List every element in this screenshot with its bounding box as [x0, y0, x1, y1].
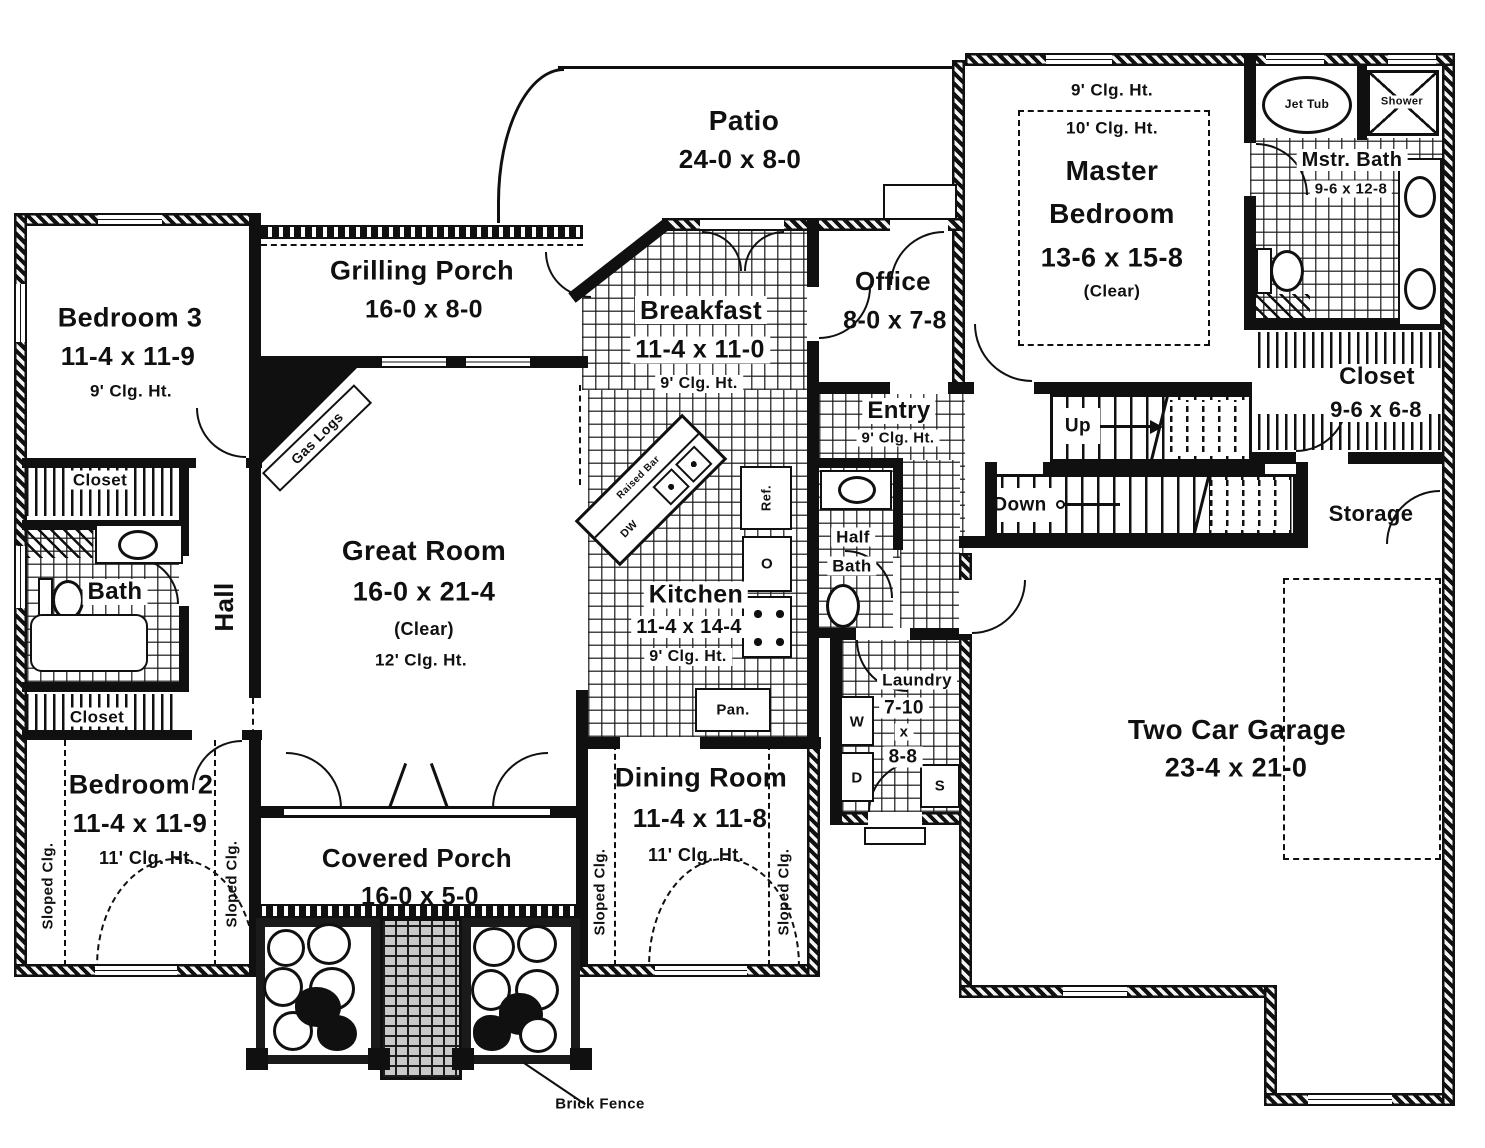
- door-leaf: [430, 763, 449, 809]
- up-arrow-line: [1100, 425, 1152, 428]
- fence-post: [368, 1048, 390, 1070]
- clg-label-master-inner: 10' Clg. Ht.: [1066, 120, 1158, 137]
- window: [1046, 53, 1112, 66]
- door-gap: [196, 458, 246, 468]
- dim-label-office: 8-0 x 7-8: [843, 309, 947, 334]
- bush: [517, 925, 557, 963]
- stairs-up-dashed: [1170, 400, 1246, 456]
- door-leaf: [388, 763, 407, 809]
- dim-label-breakfast: 11-4 x 11-0: [630, 337, 770, 364]
- porch-rail: [261, 225, 583, 239]
- window: [14, 546, 27, 608]
- laundry-step: [864, 827, 926, 845]
- stairs-up-label: Up: [1065, 417, 1091, 436]
- clg-label-bedroom2: 11' Clg. Ht.: [99, 849, 195, 867]
- room-label-bedroom3: Bedroom 3: [58, 305, 203, 332]
- room-label-laundry: Laundry: [877, 671, 957, 690]
- window: [14, 284, 27, 342]
- room-label-master-2: Bedroom: [1049, 200, 1175, 228]
- garden-bed: [256, 918, 380, 1064]
- bush: [267, 929, 305, 967]
- door-arc: [545, 252, 591, 298]
- hatch-area: [27, 524, 93, 558]
- dim-label-laundry-1: 7-10: [879, 698, 929, 719]
- dw-label: DW: [619, 519, 640, 540]
- clg-label-entry: 9' Clg. Ht.: [857, 430, 940, 447]
- door-gap: [700, 218, 784, 231]
- ref-label: Ref.: [760, 485, 773, 511]
- room-label-great-room: Great Room: [342, 537, 506, 565]
- ceiling-break-line: [252, 698, 254, 808]
- room-label-garage: Two Car Garage: [1128, 716, 1346, 744]
- corridor-tile-floor: [900, 460, 960, 632]
- shower-label: Shower: [1376, 96, 1428, 109]
- fence-post: [570, 1048, 592, 1070]
- exterior-wall: [807, 737, 820, 977]
- room-label-entry: Entry: [862, 398, 935, 424]
- note-label-master: (Clear): [1084, 283, 1141, 300]
- room-label-storage: Storage: [1329, 503, 1414, 525]
- bush-filled: [473, 1015, 511, 1051]
- dim-label-laundry-2: 8-8: [884, 747, 923, 768]
- door-arc: [286, 752, 342, 808]
- dim-label-grilling-porch: 16-0 x 8-0: [365, 298, 483, 323]
- interior-wall: [959, 536, 1308, 548]
- fence-post: [246, 1048, 268, 1070]
- patio-step: [883, 184, 957, 220]
- room-label-half-bath-2: Bath: [827, 557, 876, 576]
- stairs-down-dashed: [1210, 480, 1290, 530]
- dryer-label: D: [851, 771, 862, 786]
- interior-wall: [1296, 462, 1308, 536]
- sloped-clg-label: Sloped Clg.: [41, 843, 56, 930]
- room-label-bedroom2: Bedroom 2: [69, 772, 214, 799]
- pantry-label: Pan.: [716, 703, 749, 718]
- dim-label-master-closet: 9-6 x 6-8: [1325, 398, 1427, 422]
- room-label-master-closet: Closet: [1334, 364, 1420, 390]
- sloped-clg-label: Sloped Clg.: [225, 841, 240, 928]
- bath-sink: [118, 530, 158, 560]
- clg-label-breakfast: 9' Clg. Ht.: [655, 375, 743, 393]
- garden-bed: [462, 918, 580, 1064]
- door-gap: [856, 628, 910, 640]
- interior-wall: [249, 213, 261, 368]
- dim-label-great-room: 16-0 x 21-4: [353, 579, 496, 606]
- exterior-wall: [965, 53, 1455, 66]
- down-arrow-line: [1064, 503, 1120, 506]
- master-bath-sink: [1404, 268, 1436, 310]
- clg-label-great-room: 12' Clg. Ht.: [375, 652, 467, 669]
- dim-label-bedroom3: 11-4 x 11-9: [61, 343, 196, 369]
- brick-fence-label: Brick Fence: [555, 1097, 644, 1112]
- room-label-grilling-porch: Grilling Porch: [330, 258, 514, 285]
- room-label-closet2: Closet: [65, 708, 129, 727]
- dim-label-covered-porch: 16-0 x 5-0: [361, 885, 479, 910]
- window: [466, 356, 530, 368]
- half-bath-toilet: [826, 584, 860, 628]
- room-label-kitchen: Kitchen: [644, 582, 748, 609]
- sloped-ceiling-line: [64, 740, 66, 966]
- door-arc: [196, 408, 246, 458]
- room-label-closet3: Closet: [68, 471, 132, 490]
- bush-filled: [317, 1015, 357, 1051]
- interior-wall: [249, 368, 261, 698]
- room-label-master-1: Master: [1066, 157, 1159, 185]
- dim-label-master: 13-6 x 15-8: [1041, 245, 1184, 272]
- master-bath-sink: [1404, 176, 1436, 218]
- window: [1388, 53, 1436, 66]
- interior-wall: [807, 390, 819, 737]
- clg-label-bedroom3: 9' Clg. Ht.: [90, 383, 172, 400]
- range: [742, 596, 792, 658]
- clg-label-master-outer: 9' Clg. Ht.: [1071, 82, 1153, 99]
- door-arc: [492, 752, 548, 808]
- door-gap: [868, 812, 922, 825]
- window: [382, 356, 446, 368]
- note-label-great-room: (Clear): [394, 620, 454, 638]
- room-label-breakfast: Breakfast: [635, 296, 767, 324]
- dim-label-garage: 23-4 x 21-0: [1165, 755, 1308, 782]
- room-label-half-bath-1: Half: [831, 528, 875, 547]
- door-gap: [807, 287, 819, 341]
- bush: [307, 923, 351, 965]
- clg-label-dining: 11' Clg. Ht.: [648, 846, 744, 864]
- jet-tub-label: Jet Tub: [1285, 98, 1330, 110]
- patio-edge: [558, 66, 958, 69]
- patio-curve: [497, 68, 564, 223]
- brick-walkway: [380, 918, 462, 1080]
- room-label-bath: Bath: [83, 579, 148, 605]
- oven-label: O: [761, 557, 773, 572]
- bush: [519, 1017, 557, 1053]
- room-label-hall: Hall: [211, 582, 237, 631]
- room-label-dining: Dining Room: [615, 765, 787, 792]
- door-gap: [890, 382, 948, 394]
- door-gap: [620, 737, 700, 749]
- dim-label-dining: 11-4 x 11-8: [633, 805, 768, 831]
- door-gap: [192, 730, 242, 740]
- hatch-area: [1254, 294, 1310, 320]
- washer-label: W: [850, 715, 865, 730]
- door-arc: [972, 580, 1026, 634]
- exterior-wall: [1442, 53, 1455, 1106]
- interior-wall: [1043, 462, 1265, 474]
- room-label-master-bath: Mstr. Bath: [1297, 149, 1408, 171]
- garage-window: [1308, 1093, 1392, 1106]
- dim-label-laundry-x: x: [895, 724, 914, 741]
- bathtub: [30, 614, 148, 672]
- half-bath-sink: [838, 476, 876, 504]
- dim-label-kitchen: 11-4 x 14-4: [631, 616, 747, 638]
- room-label-patio: Patio: [709, 107, 779, 135]
- interior-wall: [1244, 53, 1256, 143]
- interior-wall: [22, 682, 189, 692]
- room-label-office: Office: [855, 268, 931, 294]
- up-arrow-head: [1150, 420, 1163, 434]
- dim-label-bedroom2: 11-4 x 11-9: [73, 810, 208, 836]
- dim-label-master-bath: 9-6 x 12-8: [1310, 181, 1392, 198]
- stairs-down-label: Down: [993, 496, 1046, 515]
- porch-ceiling-line: [261, 244, 583, 246]
- interior-wall: [249, 806, 261, 918]
- interior-wall: [1357, 66, 1367, 140]
- dim-label-patio: 24-0 x 8-0: [679, 146, 802, 172]
- door-gap: [959, 580, 972, 634]
- sink-label: S: [935, 779, 945, 794]
- room-label-covered-porch: Covered Porch: [322, 845, 512, 871]
- interior-wall: [807, 458, 903, 468]
- ceiling-break-line: [579, 385, 581, 485]
- interior-wall: [893, 458, 903, 550]
- floor-plan: Gas Logs: [0, 0, 1485, 1148]
- window: [98, 213, 162, 226]
- garage-window: [1063, 985, 1127, 998]
- bush: [473, 927, 515, 967]
- exterior-wall: [1264, 985, 1277, 1106]
- sloped-clg-label: Sloped Clg.: [593, 849, 608, 936]
- fence-post: [452, 1048, 474, 1070]
- master-toilet: [1270, 250, 1304, 292]
- clg-label-kitchen: 9' Clg. Ht.: [644, 648, 732, 666]
- door-gap: [974, 382, 1034, 394]
- window: [1266, 53, 1324, 66]
- sloped-clg-label: Sloped Clg.: [777, 849, 792, 936]
